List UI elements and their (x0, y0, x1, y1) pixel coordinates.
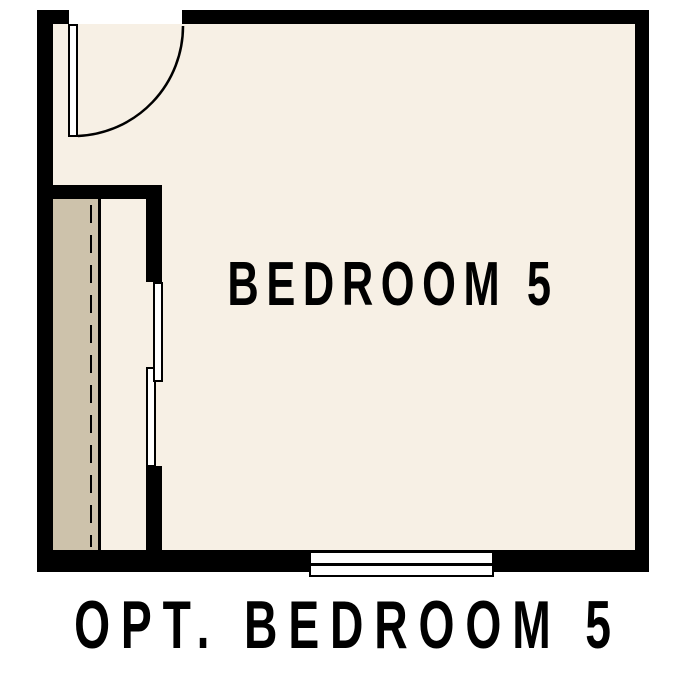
floor-plan: BEDROOM 5 OPT. BEDROOM 5 (0, 0, 687, 687)
door-leaf (68, 24, 78, 137)
closet-shelf-edge-line (98, 199, 101, 550)
closet-rod-dashed-line (90, 205, 92, 547)
plan-caption: OPT. BEDROOM 5 (74, 591, 622, 659)
wall-left (37, 10, 53, 572)
closet-bypass-door-right-panel (153, 282, 163, 382)
closet-shelf-area (53, 199, 99, 550)
closet-wall-stub-lower (146, 466, 162, 550)
window-midline (311, 563, 492, 566)
wall-top-left-stub (37, 10, 69, 24)
wall-right (635, 10, 649, 572)
closet-wall-stub-upper (146, 199, 162, 282)
closet-wall-top (37, 185, 162, 199)
window (309, 551, 494, 577)
wall-top (182, 10, 649, 24)
room-label: BEDROOM 5 (227, 254, 558, 316)
closet-bypass-door-left-panel (146, 367, 156, 467)
